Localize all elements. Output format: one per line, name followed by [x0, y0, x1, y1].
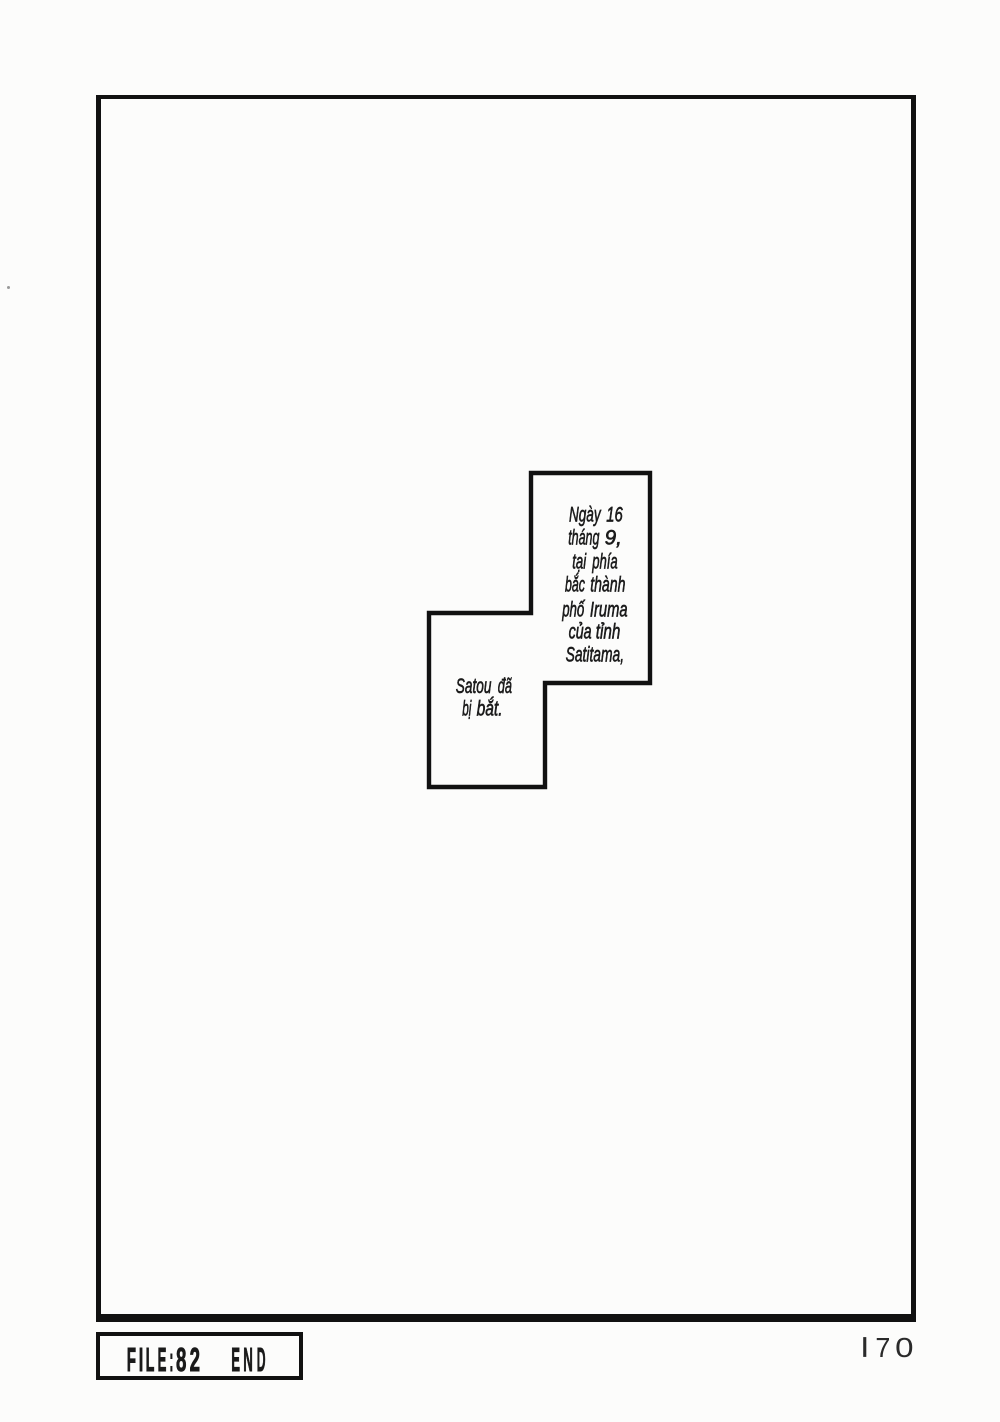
svg-text:phố: phố — [562, 599, 586, 622]
svg-text:0: 0 — [895, 1332, 913, 1363]
svg-text:N: N — [243, 1341, 253, 1378]
svg-text:tháng: tháng — [568, 527, 599, 550]
svg-text:đã: đã — [498, 675, 512, 698]
svg-text:thành: thành — [590, 574, 625, 597]
svg-text:8: 8 — [176, 1341, 186, 1378]
svg-text:2: 2 — [190, 1341, 200, 1378]
svg-text::: : — [169, 1341, 173, 1378]
svg-text:Iruma: Iruma — [590, 599, 628, 622]
svg-text:phía: phía — [592, 551, 618, 574]
svg-text:D: D — [257, 1341, 266, 1378]
svg-text:tại: tại — [572, 551, 587, 574]
svg-text:tỉnh: tỉnh — [596, 621, 621, 644]
svg-text:9,: 9, — [605, 527, 622, 550]
svg-text:Satitama,: Satitama, — [566, 644, 625, 667]
svg-text:I: I — [139, 1341, 144, 1378]
svg-text:bị: bị — [462, 698, 472, 721]
svg-text:của: của — [569, 621, 592, 644]
svg-text:Satou: Satou — [456, 675, 492, 698]
svg-text:E: E — [231, 1341, 240, 1378]
svg-text:bắc: bắc — [565, 574, 585, 597]
svg-text:L: L — [146, 1341, 155, 1378]
svg-text:16: 16 — [606, 504, 623, 527]
svg-text:Ngày: Ngày — [569, 504, 602, 527]
svg-text:F: F — [127, 1341, 136, 1378]
svg-text:bắt.: bắt. — [477, 698, 503, 721]
svg-text:7: 7 — [875, 1332, 890, 1363]
svg-text:E: E — [158, 1341, 167, 1378]
